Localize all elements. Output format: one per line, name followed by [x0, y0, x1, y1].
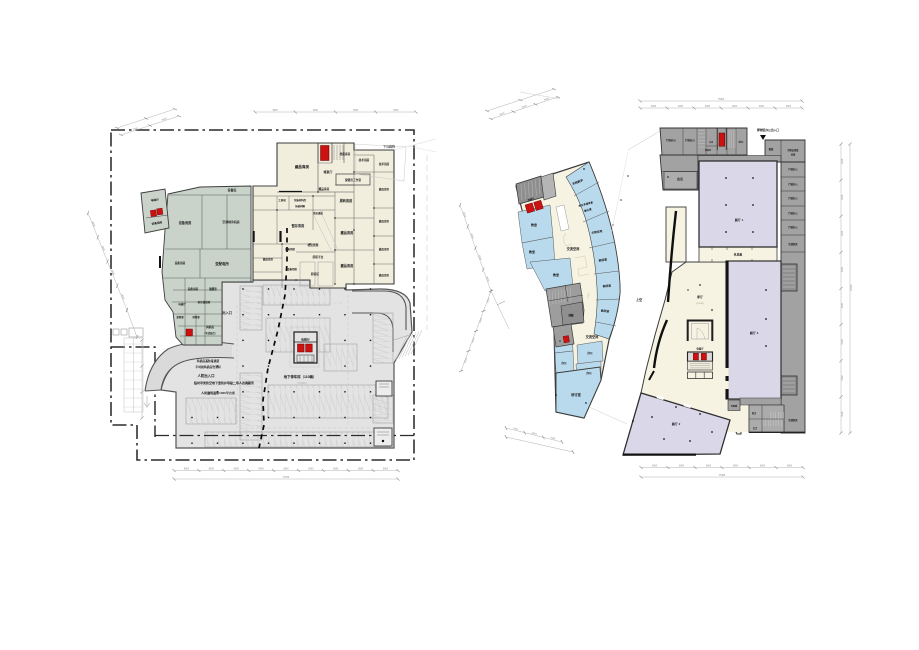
svg-text:(C3000): (C3000): [696, 303, 704, 305]
svg-text:办公: 办公: [739, 140, 744, 144]
svg-text:行政办公: 行政办公: [665, 138, 676, 142]
svg-text:拆装间隔: 拆装间隔: [295, 204, 305, 208]
svg-text:8000: 8000: [259, 469, 265, 471]
svg-text:储藏: 储藏: [568, 313, 574, 317]
svg-text:风机房兼防毒通道: 风机房兼防毒通道: [197, 359, 220, 363]
svg-text:防化值班室: 防化值班室: [198, 300, 211, 304]
svg-text:办公: 办公: [585, 371, 592, 375]
svg-text:(C3000): (C3000): [297, 381, 307, 385]
svg-text:藏品库房: 藏品库房: [263, 257, 274, 261]
svg-text:设备用房: 设备用房: [188, 287, 199, 291]
svg-text:9000: 9000: [651, 106, 657, 108]
svg-text:滤毒室: 滤毒室: [176, 315, 184, 319]
svg-text:9000: 9000: [733, 466, 739, 468]
svg-text:9000: 9000: [732, 106, 738, 108]
svg-text:研讨室: 研讨室: [571, 392, 581, 397]
svg-text:藏品库房: 藏品库房: [379, 273, 390, 277]
svg-text:8000: 8000: [840, 267, 842, 273]
svg-text:8000: 8000: [353, 110, 359, 112]
svg-text:值班: 值班: [769, 147, 774, 151]
svg-text:风机房: 风机房: [206, 325, 214, 329]
svg-text:9000: 9000: [786, 106, 792, 108]
svg-text:9000: 9000: [760, 466, 766, 468]
svg-text:展厅 1: 展厅 1: [734, 217, 744, 222]
svg-text:电梯厅: 电梯厅: [301, 337, 310, 342]
svg-text:8000: 8000: [209, 469, 215, 471]
svg-text:地下停车库（110辆）: 地下停车库（110辆）: [284, 374, 317, 379]
svg-text:技术用房: 技术用房: [359, 158, 370, 162]
svg-text:9000: 9000: [759, 106, 765, 108]
svg-text:展厅 3: 展厅 3: [749, 330, 759, 335]
svg-text:保管员工作室: 保管员工作室: [344, 178, 361, 182]
svg-text:平时排风机房洗消间: 平时排风机房洗消间: [195, 365, 220, 369]
svg-text:人防出入口: 人防出入口: [197, 373, 216, 378]
svg-text:8000: 8000: [840, 231, 842, 237]
svg-text:教室: 教室: [530, 222, 537, 227]
svg-text:技术用房: 技术用房: [379, 162, 390, 166]
svg-text:设备用房: 设备用房: [287, 267, 298, 271]
svg-text:8000: 8000: [308, 469, 314, 471]
svg-text:变配电所: 变配电所: [215, 261, 229, 266]
svg-text:储藏室: 储藏室: [209, 287, 217, 291]
svg-text:藏品库房: 藏品库房: [340, 263, 354, 268]
svg-text:教研室: 教研室: [602, 284, 612, 289]
svg-text:会议: 会议: [677, 176, 684, 181]
svg-text:设备用房: 设备用房: [175, 261, 186, 265]
svg-text:空调制冷机房: 空调制冷机房: [222, 219, 239, 224]
svg-text:8000: 8000: [840, 412, 842, 418]
svg-text:周转库房: 周转库房: [339, 198, 353, 203]
svg-text:卸货区: 卸货区: [311, 272, 319, 276]
svg-text:藏品库房: 藏品库房: [340, 230, 354, 235]
svg-text:77500: 77500: [283, 477, 290, 479]
svg-text:暂存库房: 暂存库房: [292, 223, 305, 228]
svg-text:序厅: 序厅: [696, 294, 703, 299]
svg-text:教室: 教室: [528, 249, 535, 254]
svg-text:电梯厅: 电梯厅: [696, 347, 704, 351]
svg-text:8000: 8000: [840, 339, 842, 345]
svg-text:8000: 8000: [393, 110, 399, 112]
svg-text:修复厅: 修复厅: [322, 169, 332, 174]
svg-text:上空: 上空: [636, 297, 643, 302]
svg-text:收货管理: 收货管理: [308, 243, 319, 247]
svg-text:展厅 2: 展厅 2: [671, 421, 681, 426]
svg-text:教室: 教室: [552, 272, 559, 277]
svg-text:临时甲类防空地下室防护等级二等人员掩蔽所: 临时甲类防空地下室防护等级二等人员掩蔽所: [194, 380, 254, 385]
svg-text:8000: 8000: [840, 303, 842, 309]
svg-text:8000: 8000: [840, 159, 842, 165]
svg-text:8000: 8000: [840, 375, 842, 381]
svg-text:办公: 办公: [560, 361, 567, 365]
svg-text:博物馆办公出入口: 博物馆办公出入口: [757, 128, 780, 132]
svg-text:包装材料库: 包装材料库: [293, 198, 307, 202]
svg-text:工具间: 工具间: [278, 198, 286, 202]
svg-text:教研室: 教研室: [600, 309, 610, 314]
svg-text:8000: 8000: [273, 110, 279, 112]
svg-text:8000: 8000: [383, 469, 389, 471]
svg-text:档案库房: 档案库房: [339, 152, 351, 156]
svg-text:藏品库房: 藏品库房: [379, 219, 390, 223]
svg-text:9000: 9000: [705, 106, 711, 108]
svg-text:藏品库房: 藏品库房: [379, 187, 390, 191]
svg-text:设备用房: 设备用房: [179, 220, 192, 225]
svg-text:9000: 9000: [652, 466, 658, 468]
svg-text:卸货平台: 卸货平台: [313, 255, 324, 259]
svg-text:交流空间: 交流空间: [567, 246, 580, 251]
svg-text:64000: 64000: [849, 285, 852, 292]
svg-text:9000: 9000: [678, 106, 684, 108]
svg-text:8000: 8000: [840, 195, 842, 201]
svg-text:藏品库房: 藏品库房: [318, 187, 330, 191]
svg-text:8000: 8000: [333, 469, 339, 471]
svg-text:设备区: 设备区: [227, 187, 236, 192]
svg-text:藏品库房: 藏品库房: [294, 164, 310, 169]
svg-text:8000: 8000: [234, 469, 240, 471]
svg-text:消毒室: 消毒室: [191, 315, 200, 319]
svg-text:8000: 8000: [184, 469, 190, 471]
svg-text:交流空间: 交流空间: [586, 334, 599, 339]
svg-text:8000: 8000: [313, 110, 319, 112]
svg-text:9000: 9000: [706, 466, 712, 468]
svg-text:藏品库房: 藏品库房: [379, 247, 390, 251]
svg-text:75300: 75300: [719, 475, 726, 477]
svg-text:下沉庭院: 下沉庭院: [383, 144, 395, 149]
svg-text:8000: 8000: [358, 469, 364, 471]
svg-text:电梯厅: 电梯厅: [178, 302, 186, 306]
svg-text:直运通道: 直运通道: [313, 211, 323, 215]
svg-text:9000: 9000: [679, 466, 685, 468]
svg-text:行政办公: 行政办公: [684, 138, 695, 142]
svg-text:办公: 办公: [586, 351, 593, 355]
svg-text:人防建筑面积1350平方米: 人防建筑面积1350平方米: [201, 390, 236, 395]
svg-text:75300: 75300: [718, 99, 725, 101]
svg-text:（平战结合）: （平战结合）: [203, 331, 217, 335]
svg-text:9000: 9000: [787, 466, 793, 468]
svg-text:8000: 8000: [283, 469, 289, 471]
svg-text:休息廊: 休息廊: [733, 253, 743, 257]
